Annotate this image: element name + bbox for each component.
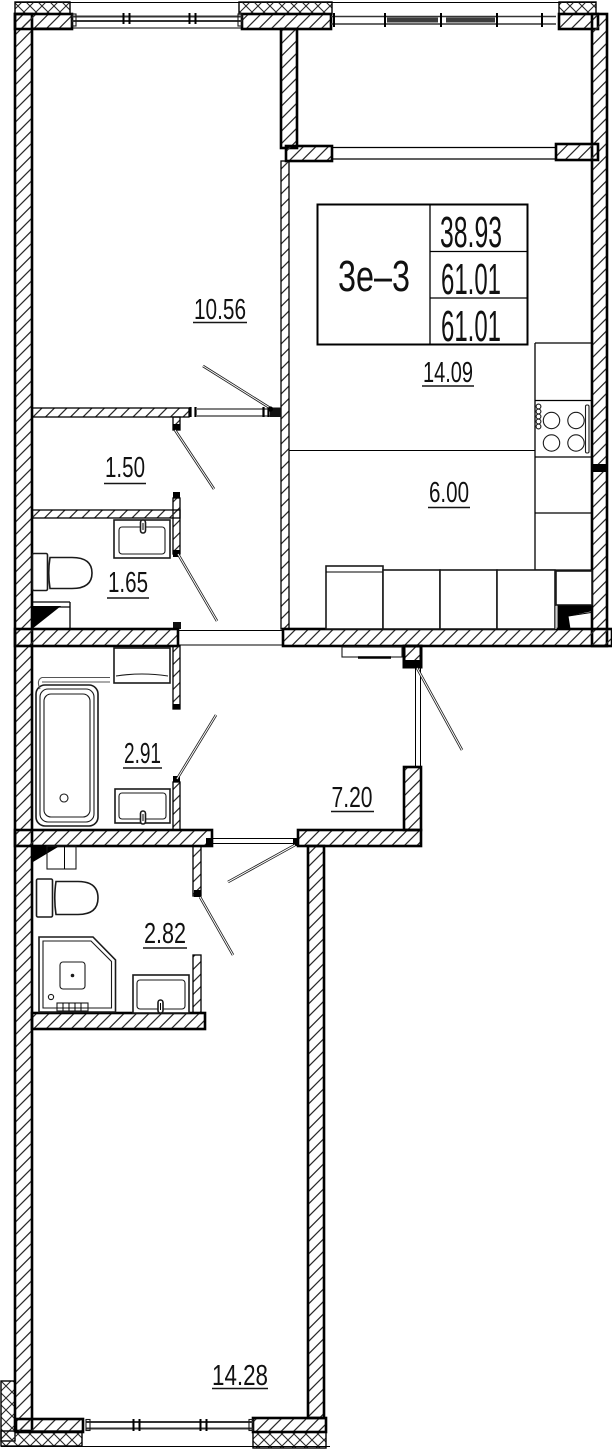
svg-text:14.28: 14.28 [212, 1360, 268, 1392]
svg-text:61.01: 61.01 [441, 302, 501, 351]
svg-text:7.20: 7.20 [332, 782, 373, 814]
svg-text:3е–3: 3е–3 [338, 252, 410, 301]
svg-text:1.50: 1.50 [105, 452, 145, 484]
svg-text:1.65: 1.65 [108, 567, 148, 599]
svg-text:10.56: 10.56 [194, 294, 246, 326]
svg-text:38.93: 38.93 [440, 208, 502, 257]
svg-text:2.91: 2.91 [124, 738, 161, 770]
svg-text:61.01: 61.01 [441, 255, 501, 304]
svg-text:2.82: 2.82 [144, 918, 186, 950]
svg-text:6.00: 6.00 [429, 477, 469, 509]
svg-text:14.09: 14.09 [423, 357, 473, 389]
